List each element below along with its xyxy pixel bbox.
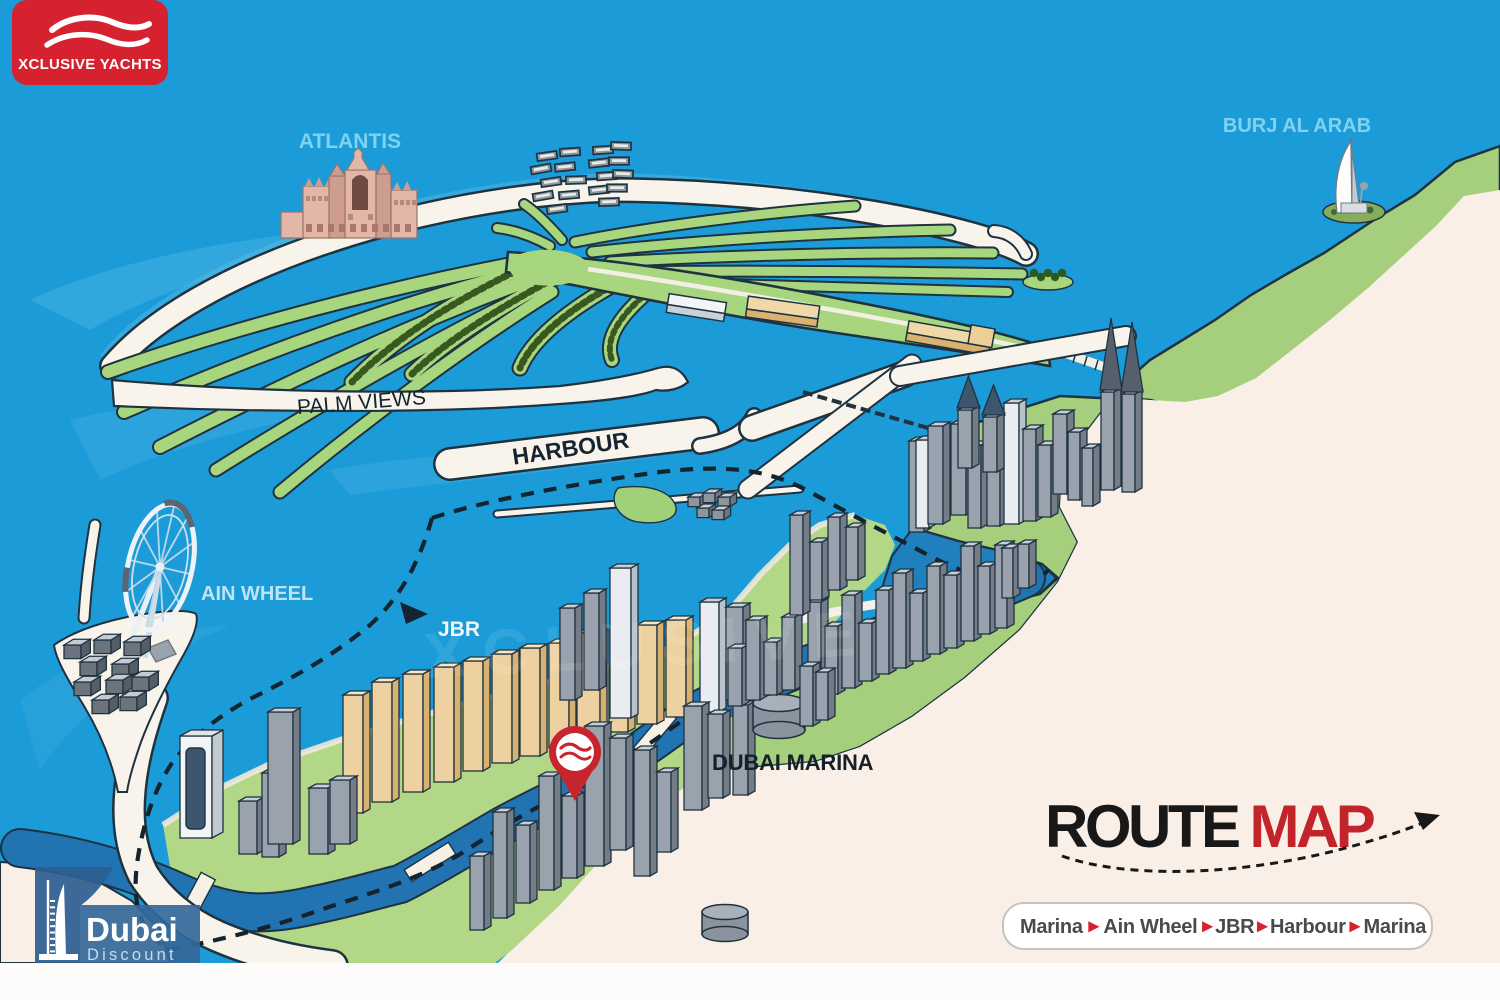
- svg-text:Marina▸Ain Wheel▸JBR▸Harbour▸M: Marina▸Ain Wheel▸JBR▸Harbour▸Marina: [1020, 915, 1427, 938]
- svg-text:BURJ AL ARAB: BURJ AL ARAB: [1223, 115, 1371, 137]
- svg-text:Discount: Discount: [87, 946, 177, 964]
- svg-text:Dubai: Dubai: [86, 911, 178, 948]
- svg-text:ATLANTIS: ATLANTIS: [299, 130, 401, 153]
- svg-text:XCLUSIVE YACHTS: XCLUSIVE YACHTS: [18, 56, 162, 73]
- svg-text:AIN WHEEL: AIN WHEEL: [201, 583, 313, 605]
- svg-text:DUBAI MARINA: DUBAI MARINA: [712, 750, 874, 775]
- svg-text:JBR: JBR: [438, 618, 480, 641]
- svg-text:ROUTEMAP: ROUTEMAP: [1045, 793, 1374, 860]
